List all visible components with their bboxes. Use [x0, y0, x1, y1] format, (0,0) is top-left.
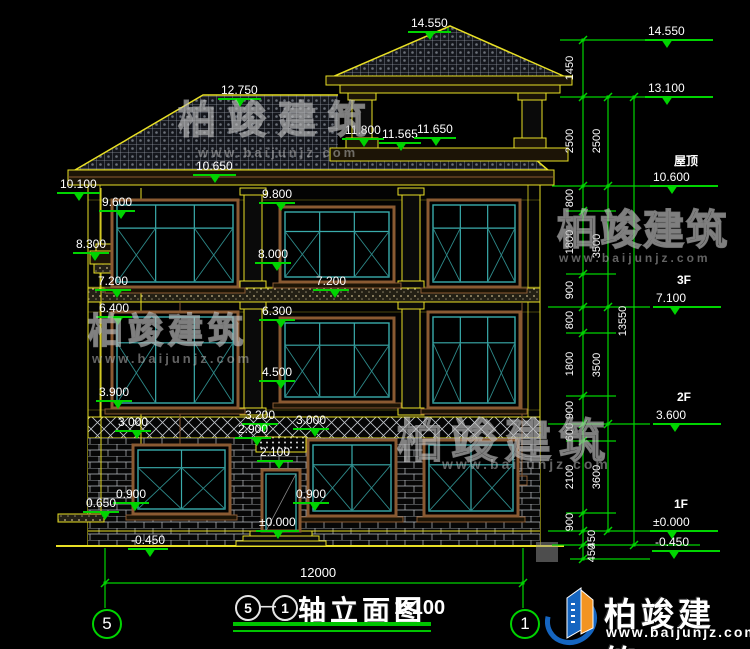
level-marker: 13.100: [645, 81, 713, 98]
level-marker: -0.450: [652, 535, 720, 552]
elevation-marker: 0.900: [293, 487, 329, 504]
elevation-marker: 8.000: [255, 247, 291, 264]
floor-label: 屋顶: [674, 152, 698, 169]
watermark-text: 柏竣建筑: [178, 102, 378, 140]
elevation-marker: 9.600: [99, 195, 135, 212]
title-axis-end: 1: [272, 595, 298, 621]
logo-url: www.baijunjz.com: [606, 624, 750, 640]
drawing-scale: 1:100: [394, 597, 445, 620]
dim-segment: 900: [563, 500, 577, 544]
window: [273, 318, 401, 408]
level-marker: 14.550: [645, 24, 713, 41]
cad-elevation-sheet: 5 1 12000 5 — 1 轴立面图 1:100 柏竣建筑 www.baij…: [0, 0, 750, 649]
elevation-marker: 12.750: [218, 83, 261, 100]
watermark-text: 柏竣建筑: [557, 210, 729, 251]
window: [421, 312, 527, 414]
overall-width-dimension: 12000: [300, 565, 336, 580]
elevation-marker: ±0.000: [256, 515, 299, 532]
elevation-marker: 6.300: [259, 304, 295, 321]
elevation-marker: -0.450: [128, 533, 168, 550]
dim-segment: 1800: [563, 342, 577, 386]
dim-segment: 2500: [563, 119, 577, 163]
elevation-marker: 2.900: [235, 422, 271, 439]
axis-bubble-left: 5: [92, 609, 122, 639]
elevation-marker: 3.000: [293, 413, 329, 430]
dim-segment: 800: [563, 298, 577, 342]
dim-segment: 1450: [563, 46, 577, 90]
level-marker: 10.600: [650, 170, 718, 187]
floor-label: 1F: [674, 497, 688, 511]
dim-segment: 2500: [590, 119, 604, 163]
elevation-marker: 9.800: [259, 187, 295, 204]
title-underline-thin: [233, 630, 431, 632]
window: [421, 200, 527, 293]
elevation-marker: 3.900: [96, 385, 132, 402]
watermark-url: www.baijunjz.com: [559, 252, 711, 264]
window: [126, 445, 237, 520]
elevation-marker: 8.300: [73, 237, 109, 254]
floor-label: 3F: [677, 273, 691, 287]
level-marker: 7.100: [653, 291, 721, 308]
dim-segment: 3500: [590, 343, 604, 387]
elevation-marker: 11.650: [414, 122, 456, 139]
elevation-marker: 14.550: [408, 16, 451, 33]
elevation-marker: 2.100: [257, 445, 293, 462]
title-axis-start: 5: [235, 595, 261, 621]
level-marker: ±0.000: [650, 515, 718, 532]
elevation-marker: 0.650: [83, 496, 119, 513]
title-underline-thick: [233, 622, 431, 626]
axis-bubble-right: 1: [510, 609, 540, 639]
elevation-marker: 10.650: [193, 159, 236, 176]
level-marker: 3.600: [653, 408, 721, 425]
watermark-url: www.baijunjz.com: [92, 352, 252, 365]
floor-label: 2F: [677, 390, 691, 404]
elevation-marker: 10.100: [57, 177, 100, 194]
watermark-text: 柏竣建筑: [88, 314, 248, 349]
elevation-marker: 3.000: [115, 415, 151, 432]
watermark-url: www.baijunjz.com: [442, 457, 611, 471]
elevation-marker: 7.200: [313, 274, 349, 291]
elevation-marker: 4.500: [259, 365, 295, 382]
elevation-marker: 7.200: [95, 274, 131, 291]
dim-segment: 450: [585, 531, 599, 575]
logo-icon: [545, 584, 603, 648]
watermark-url: www.baijunjz.com: [198, 146, 358, 159]
dim-segment: 13550: [616, 299, 630, 343]
